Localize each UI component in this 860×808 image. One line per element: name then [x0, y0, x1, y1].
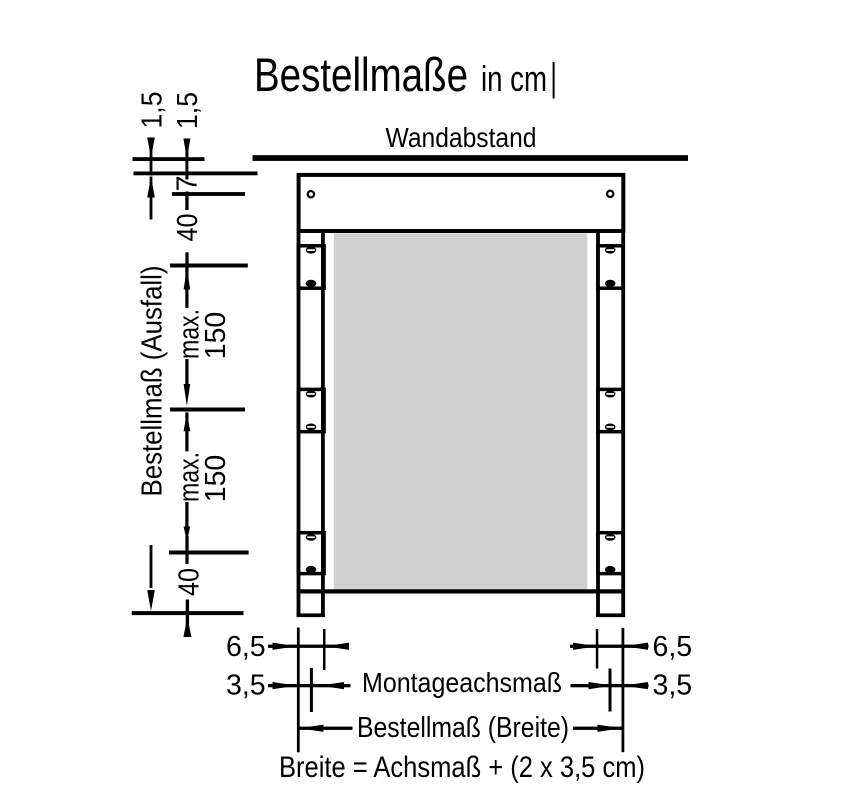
svg-text:1,5: 1,5	[137, 92, 169, 129]
svg-text:Bestellmaße: Bestellmaße	[254, 48, 468, 101]
svg-text:Bestellmaß (Breite): Bestellmaß (Breite)	[357, 712, 569, 744]
svg-text:Montageachsmaß: Montageachsmaß	[362, 667, 562, 698]
svg-text:150: 150	[200, 312, 232, 360]
svg-text:3,5: 3,5	[653, 670, 693, 702]
svg-text:40: 40	[173, 568, 205, 596]
svg-text:150: 150	[200, 455, 232, 503]
svg-text:Bestellmaß (Ausfall): Bestellmaß (Ausfall)	[136, 266, 168, 497]
svg-text:6,5: 6,5	[653, 631, 693, 663]
svg-text:7: 7	[172, 176, 204, 192]
svg-text:Breite = Achsmaß + (2 x 3,5 cm: Breite = Achsmaß + (2 x 3,5 cm)	[279, 751, 645, 784]
svg-text:Wandabstand: Wandabstand	[386, 122, 537, 153]
svg-text:40: 40	[172, 214, 204, 242]
svg-text:6,5: 6,5	[226, 631, 266, 663]
svg-text:1,5: 1,5	[172, 92, 204, 129]
svg-text:in cm: in cm	[481, 58, 547, 99]
svg-text:3,5: 3,5	[226, 670, 266, 702]
